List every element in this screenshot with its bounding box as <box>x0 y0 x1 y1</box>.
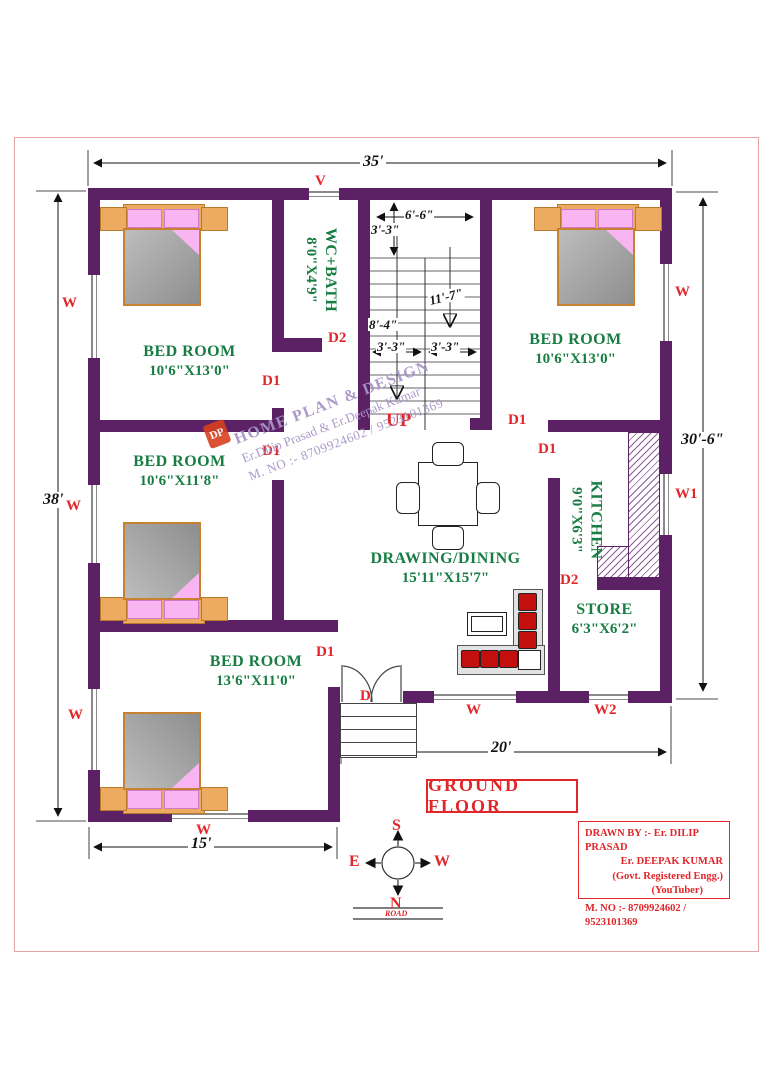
door1-label: D1 <box>262 374 280 389</box>
dining-chair <box>432 526 464 550</box>
bed-mid-left <box>100 520 228 624</box>
dim-right: 30'-6" <box>678 432 727 448</box>
compass-south: S <box>392 818 401 834</box>
stairs-dim-run2: 3'-3" <box>430 340 460 353</box>
room-name: WC+BATH <box>320 200 340 340</box>
window-label: W <box>466 703 481 718</box>
plan-title: GROUND FLOOR <box>426 779 578 813</box>
room-name: BED ROOM <box>102 452 257 472</box>
room-size: 10'6"X11'8" <box>102 472 257 491</box>
nightstand <box>201 787 228 811</box>
bed-bottom-left <box>100 710 228 814</box>
title-block: DRAWN BY :- Er. DILIP PRASAD Er. DEEPAK … <box>578 821 730 899</box>
room-name: DRAWING/DINING <box>358 549 533 569</box>
corner-table <box>518 650 541 670</box>
floor-plan-page: BED ROOM 10'6"X13'0" BED ROOM 10'6"X13'0… <box>0 0 768 1087</box>
sofa-cushion <box>480 650 499 668</box>
room-size: 6'3"X6'2" <box>552 620 657 639</box>
stairs-dim-width: 6'-6" <box>404 208 434 221</box>
pillow <box>598 209 633 228</box>
room-label-wc-bath: WC+BATH 8'0"X4'9" <box>302 200 340 340</box>
dim-bottom: 20' <box>488 740 514 756</box>
room-name: BED ROOM <box>498 330 653 350</box>
entrance-steps <box>340 703 417 758</box>
road-label: ROAD <box>385 910 407 918</box>
pillow <box>561 209 596 228</box>
title-block-line: M. NO :- 8709924602 / 9523101369 <box>585 902 723 930</box>
dim-bottom-left: 15' <box>188 836 214 852</box>
window-label: W <box>675 285 690 300</box>
room-size: 15'11"X15'7" <box>358 569 533 588</box>
compass-rose <box>366 831 430 895</box>
window-label: W <box>68 708 83 723</box>
bed-top-left <box>100 204 228 308</box>
room-name: BED ROOM <box>176 652 336 672</box>
pillow <box>164 209 199 228</box>
sofa-cushion <box>518 593 537 611</box>
door1-label: D1 <box>262 444 280 459</box>
window2-label: W2 <box>594 703 617 718</box>
door2-label: D2 <box>560 573 578 588</box>
sofa-cushion <box>461 650 480 668</box>
room-label-bedroom-bottom-left: BED ROOM 13'6"X11'0" <box>176 652 336 691</box>
nightstand <box>635 207 662 231</box>
room-size: 10'6"X13'0" <box>112 362 267 381</box>
sofa-cushion <box>518 612 537 630</box>
stairs-dim-landing: 3'-3" <box>370 223 400 236</box>
pillow <box>164 790 199 809</box>
room-name: BED ROOM <box>112 342 267 362</box>
room-label-bedroom-mid-left: BED ROOM 10'6"X11'8" <box>102 452 257 491</box>
window-label: W <box>66 499 81 514</box>
room-size: 13'6"X11'0" <box>176 672 336 691</box>
door2-label: D2 <box>328 331 346 346</box>
stairs-dim-run1: 3'-3" <box>376 340 406 353</box>
nightstand <box>100 787 127 811</box>
dining-table <box>418 462 478 526</box>
dim-top: 35' <box>360 154 386 170</box>
sofa-cushion <box>518 631 537 649</box>
coffee-table <box>467 612 507 636</box>
window1-label: W1 <box>675 487 698 502</box>
title-block-line: (Govt. Registered Engg.) <box>585 870 723 884</box>
stairs-up-label: UP <box>386 411 411 430</box>
title-block-line: Er. DEEPAK KUMAR <box>585 855 723 869</box>
pillow <box>127 600 162 619</box>
title-block-line: DRAWN BY :- Er. DILIP PRASAD <box>585 827 723 855</box>
door1-label: D1 <box>538 442 556 457</box>
room-size: 10'6"X13'0" <box>498 350 653 369</box>
kitchen-platform <box>628 432 660 578</box>
entrance-door-swing <box>342 665 401 702</box>
stairs-dim-left-run: 8'-4" <box>368 318 398 331</box>
nightstand <box>201 597 228 621</box>
door-label: D <box>360 689 371 704</box>
window-label: W <box>62 296 77 311</box>
dim-left: 38' <box>40 492 66 508</box>
pillow <box>164 600 199 619</box>
room-label-bedroom-top-left: BED ROOM 10'6"X13'0" <box>112 342 267 381</box>
dining-chair <box>396 482 420 514</box>
compass-east: E <box>349 854 360 870</box>
sofa-cushion <box>499 650 518 668</box>
vent-label: V <box>315 174 326 189</box>
pillow <box>127 209 162 228</box>
compass-west: W <box>434 854 450 870</box>
dining-chair <box>432 442 464 466</box>
room-label-store: STORE 6'3"X6'2" <box>552 600 657 639</box>
room-size: 8'0"X4'9" <box>301 200 320 340</box>
nightstand <box>100 597 127 621</box>
bed-top-right <box>534 204 662 308</box>
door1-label: D1 <box>316 645 334 660</box>
pillow <box>127 790 162 809</box>
room-label-bedroom-top-right: BED ROOM 10'6"X13'0" <box>498 330 653 369</box>
room-name: KITCHEN <box>586 443 606 598</box>
room-name: STORE <box>552 600 657 620</box>
title-block-line: (YouTuber) <box>585 884 723 898</box>
nightstand <box>201 207 228 231</box>
door1-label: D1 <box>508 413 526 428</box>
room-label-drawing-dining: DRAWING/DINING 15'11"X15'7" <box>358 549 533 588</box>
dining-chair <box>476 482 500 514</box>
